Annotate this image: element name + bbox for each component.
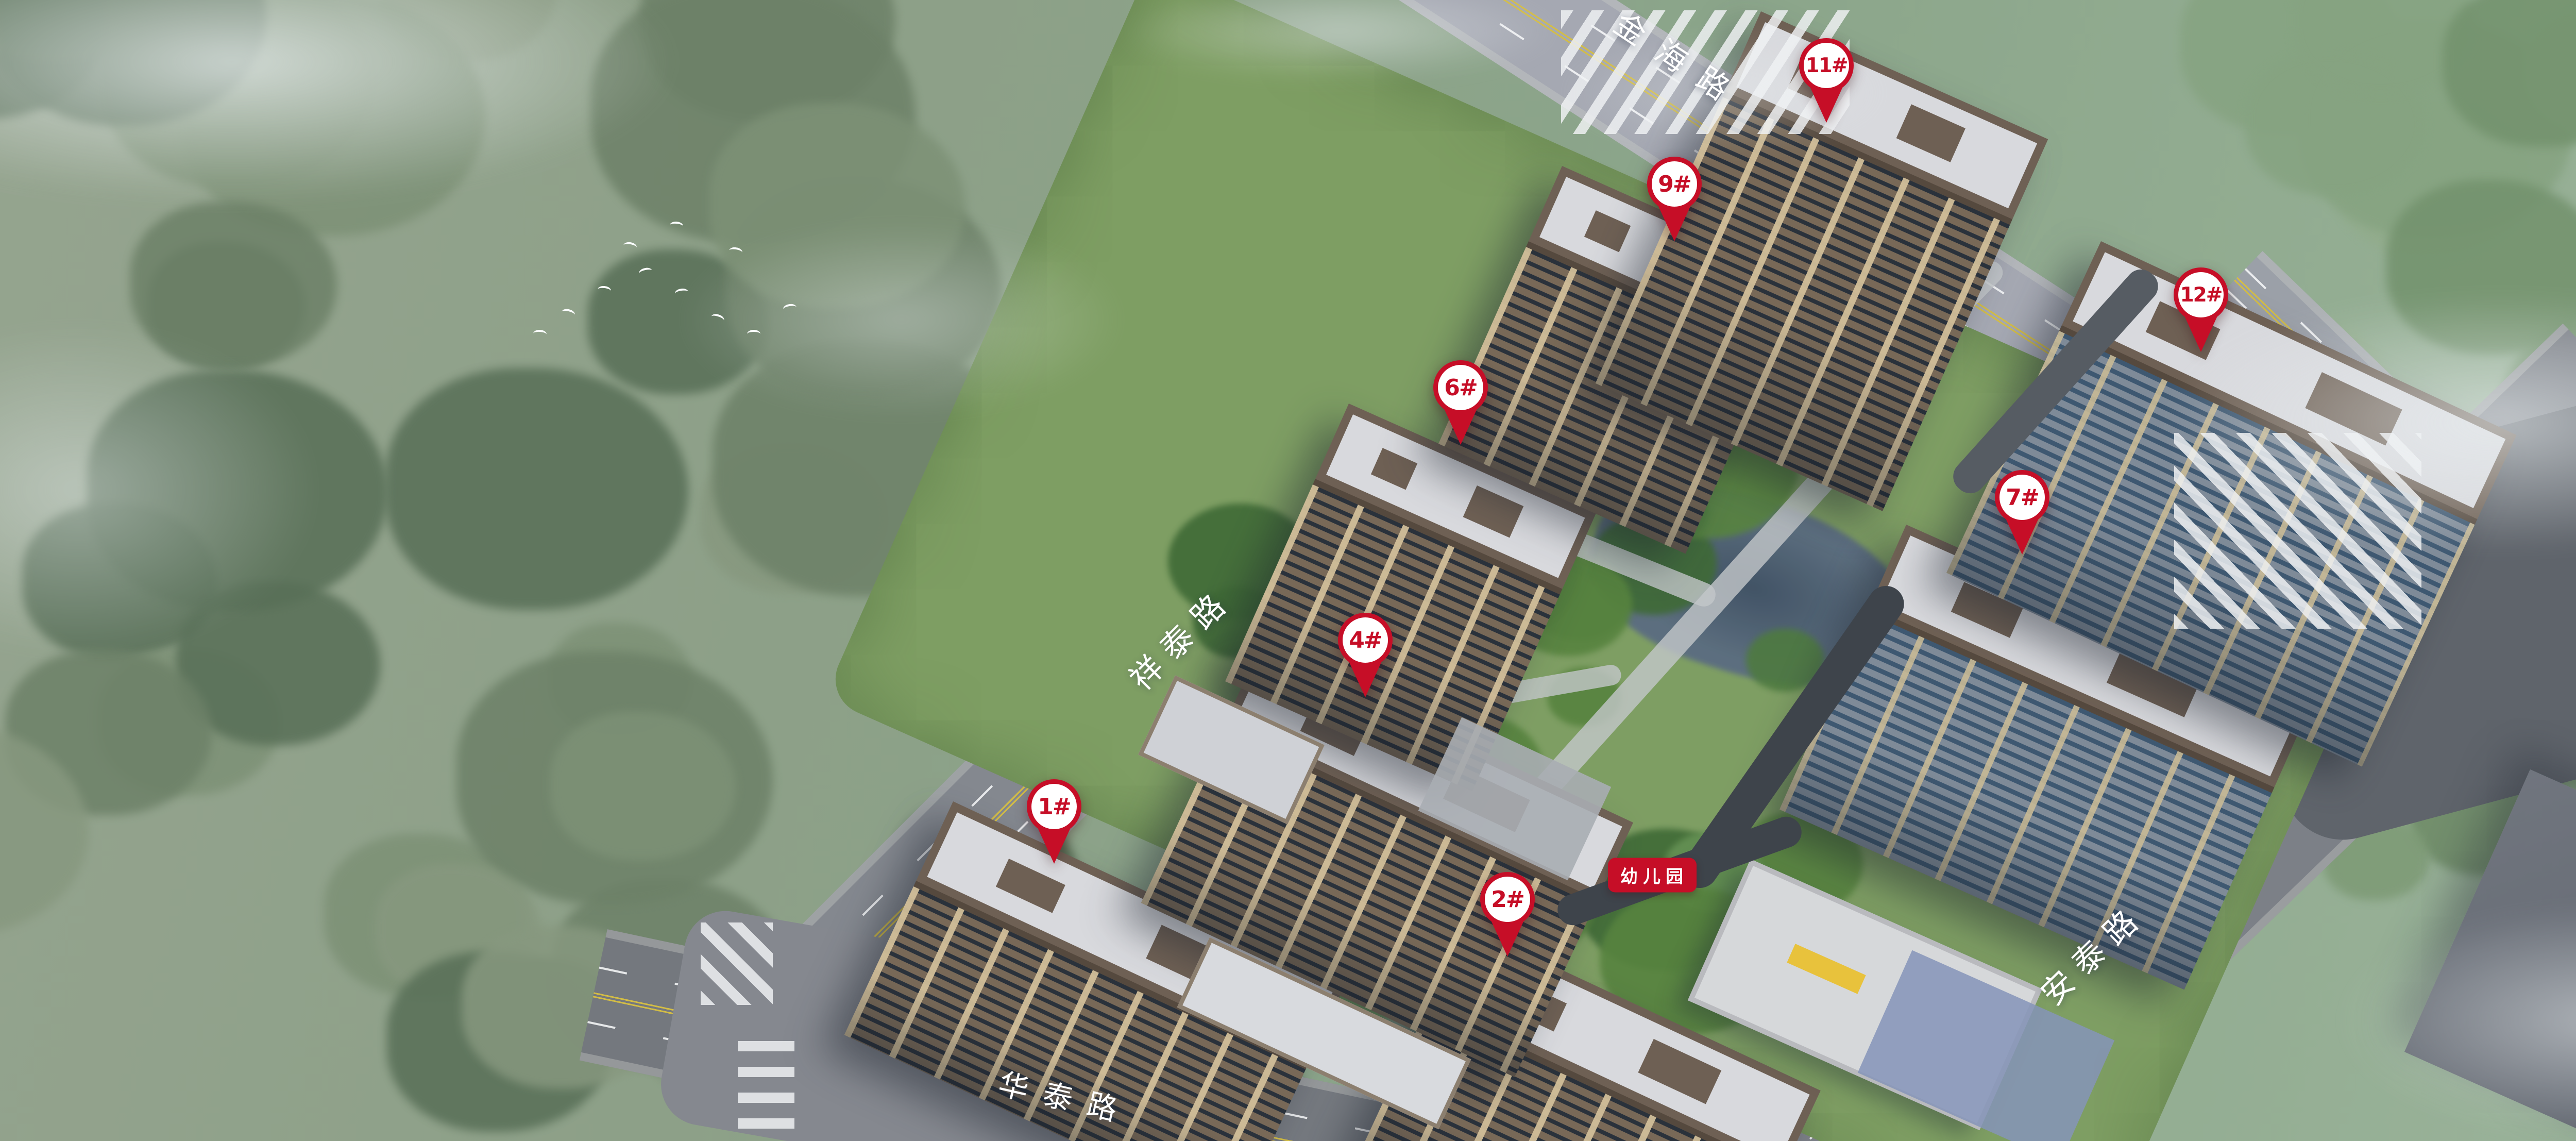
marker-tail-icon	[1348, 660, 1382, 697]
tree-clump	[386, 368, 688, 610]
marker-head: 7#	[1995, 470, 2049, 525]
marker-head: 4#	[1338, 613, 1393, 667]
roof-structure	[1584, 210, 1631, 253]
marker-tail-icon	[2184, 315, 2218, 352]
marker-head: 6#	[1433, 360, 1488, 415]
roof-structure	[1463, 485, 1523, 538]
marker-head: 2#	[1480, 872, 1535, 927]
marker-label: 6#	[1438, 365, 1483, 410]
building-marker-2: 2#	[1479, 872, 1536, 957]
roof-structure	[1371, 448, 1417, 490]
marker-label: 7#	[1999, 475, 2045, 520]
marker-tail-icon	[1444, 408, 1478, 445]
aerial-birdseye-rendering: 金海路 祥泰路 安泰路 华泰路 幼儿园 1#2#4#6#7#9#11#12# 鸟…	[0, 0, 2576, 1141]
building-marker-7: 7#	[1994, 470, 2050, 555]
marker-label: 2#	[1485, 877, 1530, 922]
marker-head: 1#	[1027, 779, 1081, 834]
bird-icon	[747, 330, 760, 338]
marker-label: 11#	[1804, 43, 1849, 88]
crosswalk	[701, 922, 773, 1005]
roof-structure	[996, 859, 1065, 913]
fog-patch	[592, 186, 1211, 454]
bird-icon	[623, 241, 637, 251]
marker-head: 9#	[1647, 157, 1702, 211]
bird-icon	[533, 329, 547, 339]
bird-icon	[561, 308, 575, 319]
marker-tail-icon	[1490, 919, 1524, 957]
marker-label: 9#	[1652, 161, 1697, 207]
roof-structure	[1638, 1039, 1721, 1104]
marker-label: 1#	[1031, 784, 1077, 829]
kindergarten-badge: 幼儿园	[1608, 858, 1697, 893]
fog-patch	[2241, 861, 2576, 1141]
building-marker-11: 11#	[1798, 38, 1855, 123]
marker-tail-icon	[1809, 86, 1843, 123]
crosswalk	[738, 1041, 794, 1141]
building-marker-1: 1#	[1026, 779, 1082, 864]
tree-clump	[550, 712, 736, 860]
marker-head: 11#	[1799, 38, 1854, 93]
marker-label: 4#	[1343, 617, 1388, 663]
building-marker-9: 9#	[1646, 157, 1703, 241]
building-marker-6: 6#	[1432, 360, 1489, 445]
marker-label: 12#	[2178, 272, 2224, 317]
building-marker-4: 4#	[1337, 613, 1394, 697]
building-marker-12: 12#	[2173, 267, 2229, 352]
marker-tail-icon	[1037, 827, 1071, 864]
marker-tail-icon	[2005, 517, 2039, 555]
marker-tail-icon	[1657, 204, 1691, 241]
marker-head: 12#	[2174, 267, 2228, 322]
